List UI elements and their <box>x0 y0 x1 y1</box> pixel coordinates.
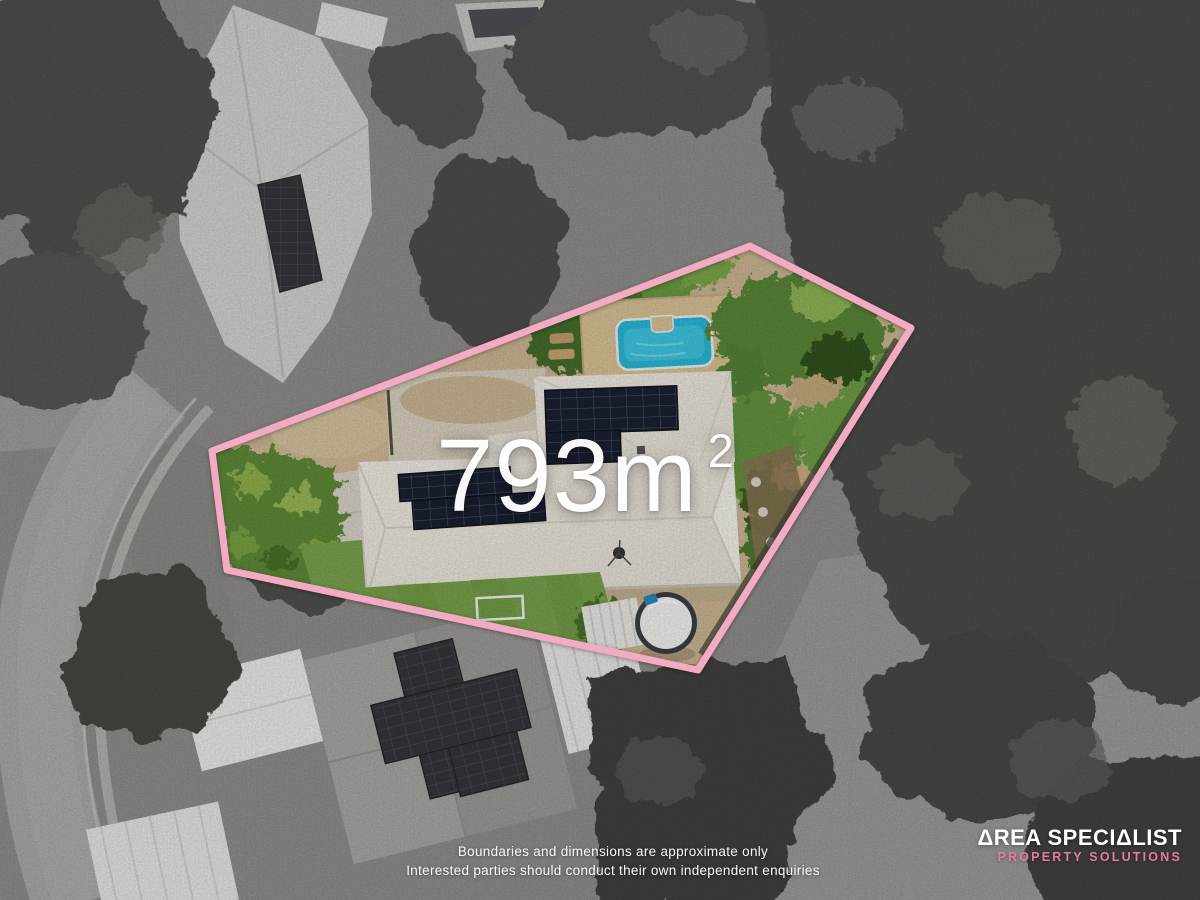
brand-tagline: PROPERTY SOLUTIONS <box>977 851 1182 864</box>
land-area-value: 793m <box>436 418 698 533</box>
brand-logo: ΔREA SPECIΔLIST PROPERTY SOLUTIONS <box>977 826 1182 864</box>
land-area-exponent: 2 <box>708 427 735 474</box>
land-area-label: 793m2 <box>436 424 735 527</box>
listing-photo: 793m2 Boundaries and dimensions are appr… <box>0 0 1200 900</box>
brand-name: ΔREA SPECIΔLIST <box>977 826 1182 849</box>
